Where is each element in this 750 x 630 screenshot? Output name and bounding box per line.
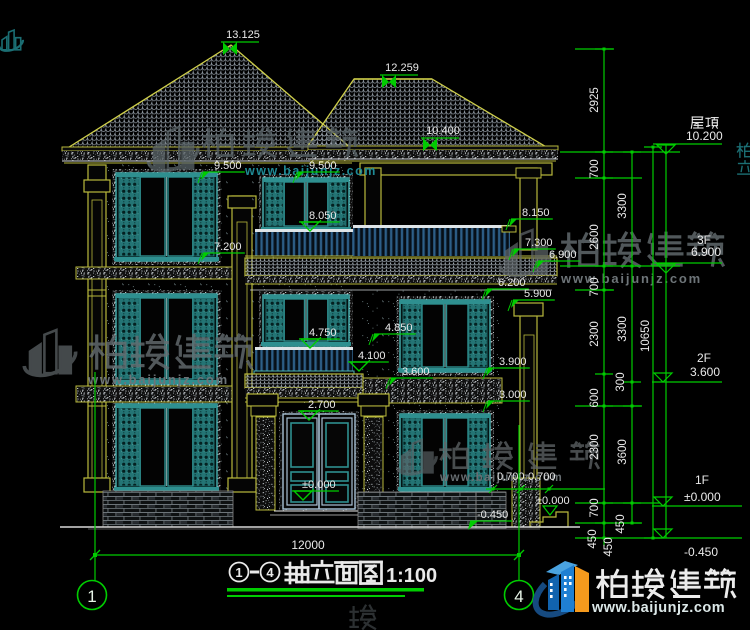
svg-text:13.125: 13.125 <box>226 29 260 41</box>
svg-text:3.600: 3.600 <box>402 366 430 378</box>
svg-text:12000: 12000 <box>291 538 325 552</box>
svg-text:3.900: 3.900 <box>499 356 527 368</box>
svg-text:700: 700 <box>589 277 601 296</box>
svg-text:0.700: 0.700 <box>528 471 556 483</box>
svg-text:4.100: 4.100 <box>358 350 386 362</box>
svg-text:1: 1 <box>87 587 96 606</box>
svg-text:7.300: 7.300 <box>525 237 553 249</box>
svg-text:www.baijunjz.com: www.baijunjz.com <box>560 271 702 286</box>
svg-text:6.900: 6.900 <box>691 245 721 259</box>
svg-text:www.baijunjz.com: www.baijunjz.com <box>87 372 229 387</box>
svg-text:±0.000: ±0.000 <box>684 490 721 504</box>
svg-text:3600: 3600 <box>617 439 629 465</box>
svg-text:8.050: 8.050 <box>309 210 337 222</box>
svg-text:1:100: 1:100 <box>386 565 437 587</box>
svg-text:10.400: 10.400 <box>426 125 460 137</box>
svg-text:2F: 2F <box>697 351 711 365</box>
svg-text:2300: 2300 <box>589 321 601 347</box>
svg-text:3300: 3300 <box>617 193 629 219</box>
svg-text:12.259: 12.259 <box>385 62 419 74</box>
svg-text:8.150: 8.150 <box>522 207 550 219</box>
svg-text:4: 4 <box>514 587 523 606</box>
svg-text:6.900: 6.900 <box>549 249 577 261</box>
svg-text:600: 600 <box>589 388 601 407</box>
svg-text:9.500: 9.500 <box>309 160 337 172</box>
svg-text:5.900: 5.900 <box>524 288 552 300</box>
svg-text:6.200: 6.200 <box>498 277 526 289</box>
svg-text:450: 450 <box>615 514 627 533</box>
svg-text:2925: 2925 <box>589 87 601 113</box>
svg-text:2600: 2600 <box>589 224 601 250</box>
svg-text:±0.000: ±0.000 <box>536 495 570 507</box>
svg-text:-0.450: -0.450 <box>477 509 508 521</box>
svg-text:www.baijunjz.com: www.baijunjz.com <box>591 600 725 616</box>
svg-text:4.750: 4.750 <box>309 327 337 339</box>
svg-text:7.200: 7.200 <box>214 241 242 253</box>
svg-text:10.200: 10.200 <box>686 129 723 143</box>
svg-text:1F: 1F <box>695 473 709 487</box>
svg-text:700: 700 <box>589 159 601 178</box>
svg-text:3.000: 3.000 <box>499 389 527 401</box>
svg-text:2.700: 2.700 <box>308 399 336 411</box>
svg-text:3.600: 3.600 <box>690 365 720 379</box>
svg-text:4.850: 4.850 <box>385 322 413 334</box>
svg-text:9.500: 9.500 <box>214 160 242 172</box>
svg-text:±0.000: ±0.000 <box>302 479 336 491</box>
svg-text:3300: 3300 <box>617 316 629 342</box>
svg-text:2300: 2300 <box>589 434 601 460</box>
svg-text:1: 1 <box>235 565 242 580</box>
svg-text:10650: 10650 <box>640 320 652 352</box>
svg-text:0.700: 0.700 <box>497 471 525 483</box>
svg-text:4: 4 <box>266 565 274 580</box>
svg-text:450: 450 <box>603 537 615 556</box>
svg-text:700: 700 <box>589 498 601 517</box>
svg-text:450: 450 <box>587 529 599 548</box>
svg-text:300: 300 <box>615 372 627 391</box>
svg-text:-0.450: -0.450 <box>684 545 718 559</box>
